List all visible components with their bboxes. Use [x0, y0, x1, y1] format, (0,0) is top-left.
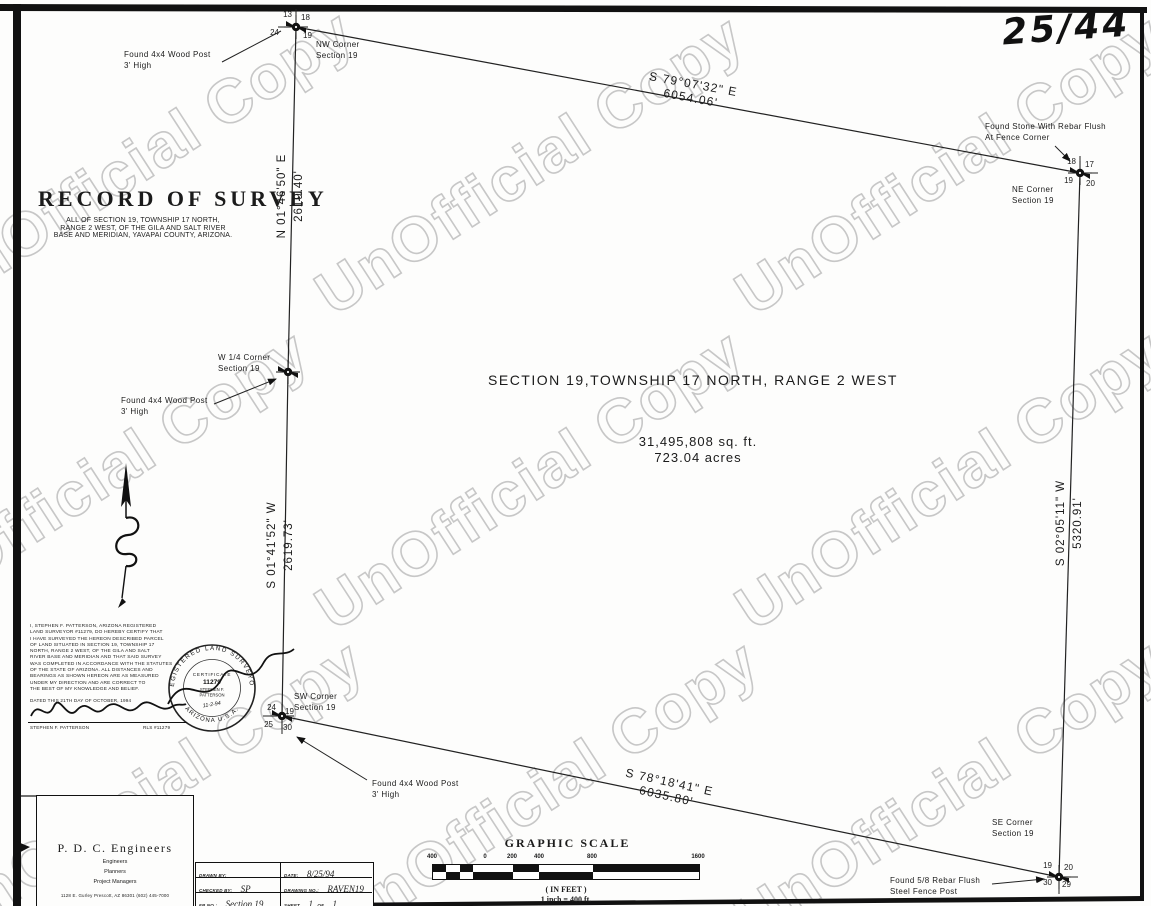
firm-service-1: Engineers — [37, 857, 193, 867]
sw-tick-19: 19 — [285, 707, 294, 716]
record-of-survey-heading: RECORD OF SURVEY ALL OF SECTION 19, TOWN… — [38, 186, 248, 240]
sw-found-note: Found 4x4 Wood Post 3' High — [372, 779, 459, 800]
ne-tick-18: 18 — [1062, 157, 1076, 166]
cert-line: I HAVE SURVEYED THE HEREON DESCRIBED PAR… — [30, 637, 172, 643]
nw-found-note-line2: 3' High — [124, 61, 211, 72]
se-found-note-line1: Found 5/8 Rebar Flush — [890, 876, 980, 887]
scale-tick-0: 0 — [483, 854, 486, 860]
firm-service-3: Project Managers — [37, 877, 193, 887]
west-lower-bearing: S 01°41'52" W — [266, 480, 278, 610]
se-corner-name: SE Corner — [992, 818, 1034, 829]
w4-corner-name: W 1/4 Corner — [218, 353, 270, 364]
nw-tick-19: 19 — [303, 31, 312, 40]
w4-found-note: Found 4x4 Wood Post 3' High — [121, 396, 208, 417]
north-boundary-label: S 79°07'32" E 6054.06' — [611, 63, 773, 120]
drawing-no-cell: DRAWING NO.: RAVEN19 — [281, 878, 372, 893]
nw-tick-18: 18 — [301, 13, 310, 22]
signer-license: RLS #11279 — [143, 725, 170, 730]
survey-sheet: UnOfficial Copy UnOfficial Copy UnOffici… — [0, 0, 1151, 906]
nw-corner-name: NW Corner — [316, 40, 360, 51]
signer-name: STEPHEN F. PATTERSON — [30, 725, 89, 730]
drawing-no-value: RAVEN19 — [327, 884, 364, 893]
sheet-total-value: 1 — [333, 899, 338, 906]
cert-line: BEARINGS AS SHOWN HEREON ARE AS MEASURED — [30, 674, 172, 680]
ne-corner-label: NE Corner Section 19 — [1012, 185, 1054, 206]
sw-corner-label: SW Corner Section 19 — [294, 692, 337, 713]
date-cell: DATE: 8/25/94 — [281, 863, 372, 878]
parcel-area-acres: 723.04 acres — [613, 450, 783, 466]
cert-line: THE BEST OF MY KNOWLEDGE AND BELIEF. — [30, 687, 172, 693]
ne-tick-19: 19 — [1059, 176, 1073, 185]
se-tick-19: 19 — [1038, 861, 1052, 870]
parcel-area-sqft: 31,495,808 sq. ft. — [613, 434, 783, 450]
cert-line: RIVER BASE AND MERIDIAN AND THAT SAID SU… — [30, 655, 172, 661]
ne-found-note-line2: At Fence Corner — [985, 133, 1106, 144]
title-subtitle-line2: RANGE 2 WEST, OF THE GILA AND SALT RIVER — [38, 225, 248, 233]
w4-found-note-line2: 3' High — [121, 407, 208, 418]
handwritten-sheet-number: 25/44 — [1001, 4, 1132, 54]
scale-bar — [432, 864, 700, 880]
sw-corner-section: Section 19 — [294, 703, 337, 714]
se-corner-section: Section 19 — [992, 829, 1034, 840]
se-tick-20: 20 — [1064, 863, 1073, 872]
scale-tick-200: 200 — [507, 854, 517, 860]
sw-found-note-line1: Found 4x4 Wood Post — [372, 779, 459, 790]
w4-corner-label: W 1/4 Corner Section 19 — [218, 353, 270, 374]
se-found-note-line2: Steel Fence Post — [890, 887, 980, 898]
nw-found-note: Found 4x4 Wood Post 3' High — [124, 50, 211, 71]
firm-title-block: P. D. C. Engineers Engineers Planners Pr… — [36, 795, 194, 906]
fb-no-value: Section 19 — [226, 899, 264, 906]
page-title: RECORD OF SURVEY — [38, 186, 248, 212]
south-boundary-label: S 78°18'41" E 6035.80' — [587, 758, 749, 820]
w4-corner-section: Section 19 — [218, 364, 270, 375]
sw-tick-25: 25 — [259, 720, 273, 729]
ne-found-note: Found Stone With Rebar Flush At Fence Co… — [985, 122, 1106, 143]
graphic-scale-title: GRAPHIC SCALE — [490, 836, 645, 851]
scale-ratio-note: 1 inch = 400 ft. — [518, 895, 614, 904]
cert-line: LAND SURVEYOR #11279, DO HEREBY CERTIFY … — [30, 630, 172, 636]
scale-units-note: ( IN FEET ) — [520, 885, 612, 894]
ne-corner-section: Section 19 — [1012, 196, 1054, 207]
certification-dated: DATED THIS 21TH DAY OF OCTOBER, 1994 — [30, 698, 131, 703]
se-corner-label: SE Corner Section 19 — [992, 818, 1034, 839]
west-upper-bearing: N 01°46'50" E — [276, 131, 288, 261]
nw-found-note-line1: Found 4x4 Wood Post — [124, 50, 211, 61]
sw-tick-24: 24 — [262, 703, 276, 712]
nw-corner-section: Section 19 — [316, 51, 360, 62]
drawing-info-table: DRAWN BY: DATE: 8/25/94 CHECKED BY: SP D… — [195, 862, 374, 906]
nw-tick-24: 24 — [265, 28, 279, 37]
sw-found-note-line2: 3' High — [372, 790, 459, 801]
se-tick-29: 29 — [1062, 880, 1071, 889]
scale-tick-1600: 1600 — [691, 854, 704, 860]
ne-tick-20: 20 — [1086, 179, 1095, 188]
date-value: 8/25/94 — [307, 869, 335, 878]
title-subtitle-line1: ALL OF SECTION 19, TOWNSHIP 17 NORTH, — [38, 217, 248, 225]
parcel-section-label: SECTION 19,TOWNSHIP 17 NORTH, RANGE 2 WE… — [478, 372, 908, 388]
sheet-no-value: 1 — [308, 899, 313, 906]
east-distance: 5320.91' — [1072, 458, 1084, 588]
certification-text: I, STEPHEN F. PATTERSON, ARIZONA REGISTE… — [30, 624, 172, 693]
firm-services: Engineers Planners Project Managers — [37, 857, 193, 887]
se-found-note: Found 5/8 Rebar Flush Steel Fence Post — [890, 876, 980, 897]
title-subtitle-line3: BASE AND MERIDIAN, YAVAPAI COUNTY, ARIZO… — [38, 232, 248, 240]
sw-corner-name: SW Corner — [294, 692, 337, 703]
checked-by-value: SP — [241, 884, 251, 893]
se-tick-30: 30 — [1038, 878, 1052, 887]
nw-corner-label: NW Corner Section 19 — [316, 40, 360, 61]
west-lower-distance: 2619.73' — [283, 480, 295, 610]
sw-tick-30: 30 — [283, 723, 292, 732]
firm-service-2: Planners — [37, 867, 193, 877]
sheet-cell: SHEET 1 OF 1 — [281, 893, 372, 906]
ne-found-note-line1: Found Stone With Rebar Flush — [985, 122, 1106, 133]
nw-tick-13: 13 — [278, 10, 292, 19]
scale-tick-400: 400 — [534, 854, 544, 860]
firm-address: 1128 E. Gurley Prescott, AZ 86301 (602) … — [37, 893, 193, 898]
checked-by-cell: CHECKED BY: SP — [196, 878, 281, 893]
west-upper-distance: 2619.40' — [293, 131, 305, 261]
w4-found-note-line1: Found 4x4 Wood Post — [121, 396, 208, 407]
east-bearing: S 02°05'11" W — [1055, 458, 1067, 588]
fb-no-cell: FB NO.: Section 19 — [196, 893, 281, 906]
scale-tick-800: 800 — [587, 854, 597, 860]
scale-tick-400L: 400 — [427, 854, 437, 860]
firm-name: P. D. C. Engineers — [37, 841, 193, 856]
parcel-area: 31,495,808 sq. ft. 723.04 acres — [613, 434, 783, 466]
drawn-by-cell: DRAWN BY: — [196, 863, 281, 878]
ne-corner-name: NE Corner — [1012, 185, 1054, 196]
ne-tick-17: 17 — [1085, 160, 1094, 169]
